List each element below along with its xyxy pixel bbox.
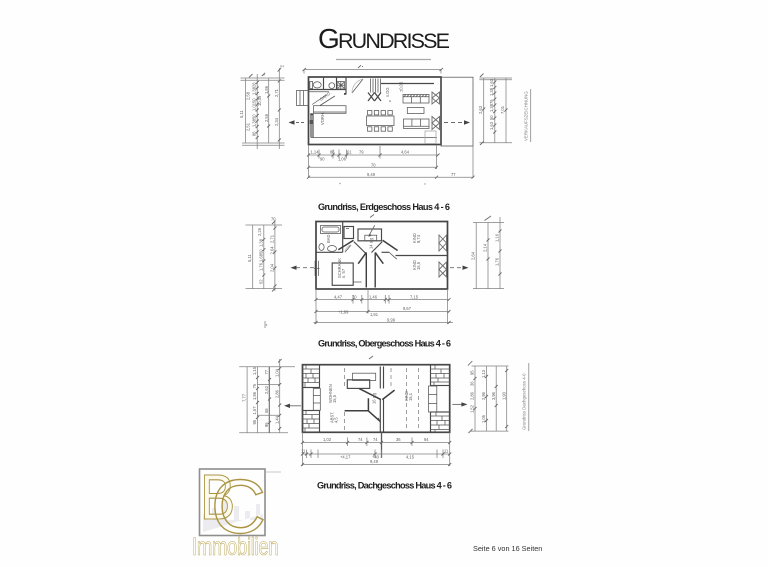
svg-text:15,5: 15,5 [332,394,337,403]
svg-text:50: 50 [489,115,494,120]
svg-text:7,77: 7,77 [242,393,247,402]
svg-text:84: 84 [280,65,284,69]
svg-text:3,96: 3,96 [491,391,496,400]
svg-text:7,01: 7,01 [500,105,505,114]
svg-text:14 stg: 14 stg [369,237,374,249]
svg-text:2,71: 2,71 [274,88,279,97]
svg-text:1,63: 1,63 [489,78,494,87]
svg-text:95: 95 [252,419,257,424]
svg-text:1,14: 1,14 [311,150,320,155]
svg-text:1,52: 1,52 [470,404,475,413]
svg-text:GRUNDRISSE: GRUNDRISSE [318,23,450,54]
svg-text:2,63: 2,63 [478,105,483,114]
svg-text:36: 36 [470,381,475,386]
svg-text:9,57: 9,57 [403,306,412,311]
svg-text:1,38: 1,38 [252,118,257,127]
svg-text:2,14: 2,14 [483,243,488,252]
svg-text:2,71: 2,71 [270,234,275,243]
svg-text:4,5: 4,5 [334,417,339,423]
svg-text:1,13: 1,13 [481,369,486,378]
svg-text:2,34: 2,34 [274,117,279,126]
svg-text:1,76: 1,76 [258,262,263,271]
svg-text:2,86: 2,86 [274,389,279,398]
svg-text:1,44: 1,44 [274,415,279,424]
svg-text:52: 52 [258,279,263,284]
svg-text:50: 50 [252,98,257,103]
svg-text:+1,99: +1,99 [338,310,349,315]
svg-text:2,51: 2,51 [246,122,251,131]
svg-text:11: 11 [444,449,449,454]
svg-text:1,01: 1,01 [252,102,257,111]
svg-text:86: 86 [330,150,335,155]
svg-text:4,15: 4,15 [406,454,415,459]
svg-text:2,64: 2,64 [471,251,476,260]
svg-text:16 stg: 16 stg [372,392,377,404]
svg-text:9,99: 9,99 [387,317,396,322]
svg-text:61: 61 [347,150,352,155]
svg-text:1,76: 1,76 [495,257,500,266]
svg-text:1,04: 1,04 [274,368,279,377]
svg-text:90: 90 [320,157,325,162]
svg-text:1,46: 1,46 [369,294,378,299]
svg-text:1,38: 1,38 [489,87,494,96]
svg-text:74: 74 [373,437,378,442]
svg-text:75: 75 [489,99,494,104]
svg-text:7,15: 7,15 [410,294,419,299]
svg-text:15,1: 15,1 [408,392,413,401]
svg-text:77: 77 [451,172,456,177]
svg-text:2,96: 2,96 [481,391,486,400]
svg-text:70: 70 [371,162,376,167]
svg-text:58: 58 [264,408,269,413]
svg-text:1,93: 1,93 [501,391,506,400]
svg-text:11: 11 [301,449,306,454]
svg-text:Grundriss, Dachgeschoss Haus 4: Grundriss, Dachgeschoss Haus 4 - 6 [317,481,452,491]
svg-text:94: 94 [424,437,429,442]
svg-text:s.OG: s.OG [385,87,390,97]
svg-text:77: 77 [264,369,269,374]
svg-text:1,38: 1,38 [258,238,263,247]
svg-text:50: 50 [252,114,257,119]
svg-text:5,11: 5,11 [239,110,244,118]
svg-text:1,38: 1,38 [252,86,257,95]
svg-text:Grundriss, Erdgeschoss Haus 4: Grundriss, Erdgeschoss Haus 4 - 6 [318,202,450,212]
svg-text:5,11: 5,11 [247,254,252,262]
svg-text:1,16: 1,16 [495,233,500,242]
svg-text:70: 70 [352,294,357,299]
svg-text:+4,17: +4,17 [340,454,351,459]
svg-text:1,06: 1,06 [338,157,347,162]
svg-text:10,05: 10,05 [257,95,262,106]
svg-text:9,49: 9,49 [370,459,379,464]
svg-text:4,47: 4,47 [334,294,343,299]
svg-text:50: 50 [258,249,263,254]
svg-text:4,64: 4,64 [401,150,410,155]
svg-text:1,57: 1,57 [252,406,257,415]
svg-text:1,81: 1,81 [370,312,379,317]
svg-text:70: 70 [271,217,276,222]
svg-text:1,05: 1,05 [481,414,486,423]
svg-text:1,38: 1,38 [489,103,494,112]
svg-text:36: 36 [396,437,401,442]
svg-text:16,5: 16,5 [416,261,421,270]
svg-text:VERKAUFSZEICHNUNG: VERKAUFSZEICHNUNG [524,91,529,141]
svg-text:74: 74 [358,437,363,442]
svg-text:Grundriss, Obergeschoss Haus 4: Grundriss, Obergeschoss Haus 4 - 6 [318,339,451,349]
svg-text:9,49: 9,49 [367,172,376,177]
svg-text:95: 95 [470,370,475,375]
svg-text:86: 86 [252,131,257,136]
svg-text:2,86: 2,86 [470,391,475,400]
svg-text:1,15: 1,15 [252,366,257,375]
svg-text:2,64: 2,64 [270,246,275,255]
svg-text:VORH.: VORH. [320,112,325,125]
svg-text:BAD: BAD [326,235,331,243]
svg-text:Immobilien: Immobilien [192,532,279,560]
svg-text:2,04: 2,04 [270,263,275,272]
svg-text:2,58: 2,58 [246,91,251,100]
svg-text:1,02: 1,02 [323,437,332,442]
svg-text:2,26: 2,26 [257,227,262,236]
svg-text:95: 95 [264,422,269,427]
svg-text:1,86: 1,86 [264,85,269,94]
svg-text:±0,00: ±0,00 [399,81,404,92]
svg-text:2,56: 2,56 [264,113,269,122]
svg-text:Grundriss Dachgeschoss 4-6: Grundriss Dachgeschoss 4-6 [522,373,527,430]
svg-text:75: 75 [252,383,257,388]
svg-text:Seite 6 von 16 Seiten: Seite 6 von 16 Seiten [473,544,542,553]
svg-text:9,74: 9,74 [416,234,421,243]
svg-text:1,68: 1,68 [258,253,263,262]
svg-text:1,96: 1,96 [252,391,257,400]
svg-text:2,62: 2,62 [264,385,269,394]
svg-text:26: 26 [252,82,257,87]
svg-text:1,63: 1,63 [489,121,494,130]
svg-text:79: 79 [359,150,364,155]
svg-text:n. 57: n. 57 [341,268,346,278]
